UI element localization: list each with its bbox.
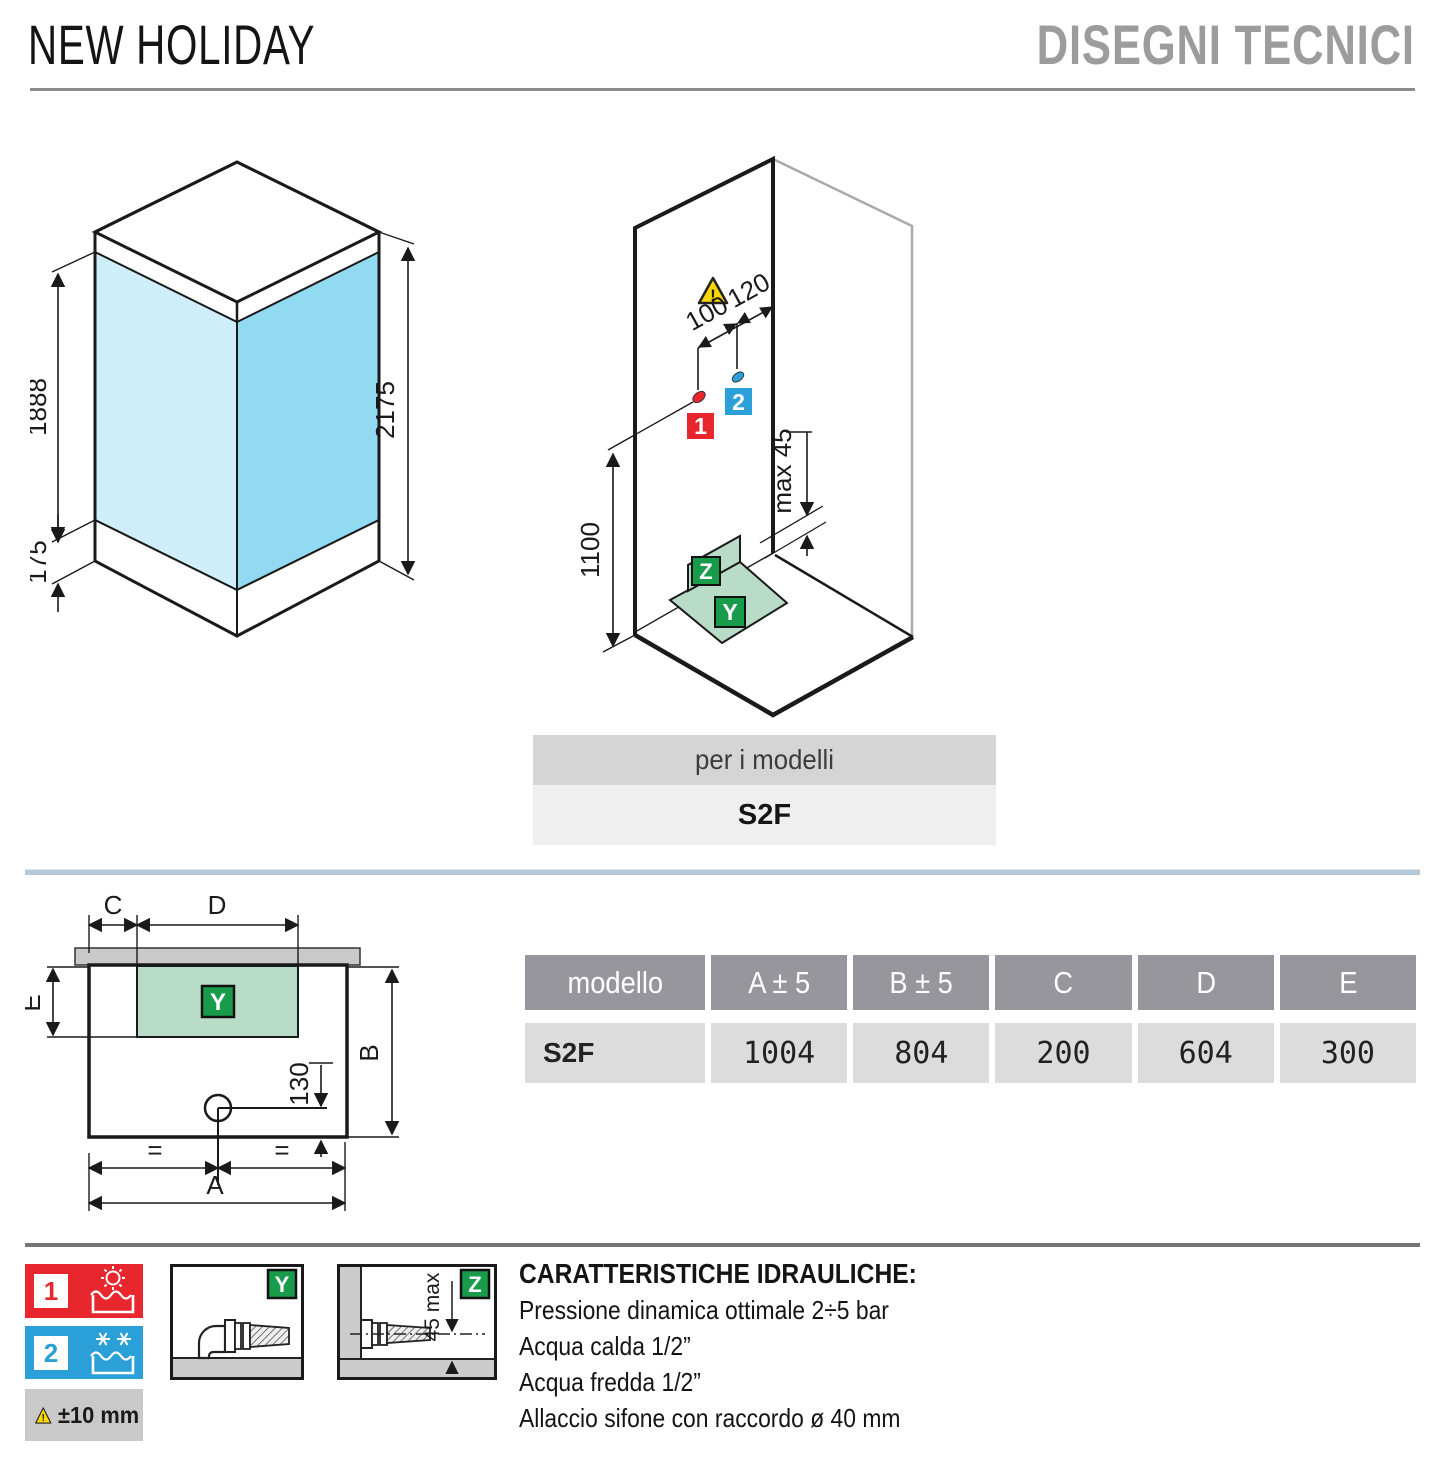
svg-text:B: B [354, 1044, 384, 1061]
header-e: E [1280, 955, 1416, 1010]
floor-strip [340, 1359, 494, 1377]
header-d: D [1138, 955, 1274, 1010]
svg-text:1100: 1100 [575, 522, 605, 578]
cell-b: 804 [853, 1023, 989, 1083]
dimension-175: 175 [30, 514, 95, 612]
svg-text:175: 175 [30, 540, 52, 583]
cold-water-badge: 2 [725, 388, 752, 415]
svg-text:A: A [206, 1170, 224, 1200]
section-title: DISEGNI TECNICI [1037, 12, 1415, 77]
svg-text:2175: 2175 [370, 381, 400, 439]
legend-tolerance: ! ±10 mm [25, 1389, 143, 1441]
svg-text:45 max: 45 max [421, 1272, 444, 1341]
models-bar-model: S2F [533, 785, 996, 845]
water-basin-icon [91, 1292, 133, 1313]
hot-number-badge: 1 [34, 1274, 68, 1308]
svg-text:C: C [104, 895, 123, 920]
drain-detail-y: Y [170, 1264, 304, 1380]
spec-table-data-row: S2F 1004 804 200 604 300 [525, 1023, 1416, 1083]
legend-hot-water: 1 [25, 1264, 143, 1318]
header-c: C [995, 955, 1131, 1010]
svg-text:120: 120 [722, 266, 774, 313]
z-badge: Z [461, 1270, 489, 1298]
dimension-45max: 45 max [421, 1272, 452, 1373]
hydraulic-line-hot: Acqua calda 1/2” [519, 1331, 1012, 1362]
cell-c: 200 [995, 1023, 1131, 1083]
cell-e: 300 [1280, 1023, 1416, 1083]
svg-text:Y: Y [275, 1272, 290, 1297]
hot-water-badge: 1 [687, 413, 714, 439]
wall-bar [75, 948, 360, 965]
water-basin-icon [91, 1353, 133, 1374]
cold-number-badge: 2 [34, 1336, 68, 1370]
svg-text:1888: 1888 [30, 378, 52, 436]
header-a: A ± 5 [711, 955, 847, 1010]
hydraulic-line-siphon: Allaccio sifone con raccordo ø 40 mm [519, 1403, 1012, 1434]
svg-text:Z: Z [468, 1272, 481, 1297]
floor-strip [173, 1358, 301, 1377]
tolerance-value: ±10 mm [58, 1402, 139, 1429]
svg-text:=: = [147, 1135, 162, 1165]
svg-text:=: = [274, 1135, 289, 1165]
svg-text:!: ! [42, 1413, 45, 1424]
installation-isometric-drawing: ! 100 120 1 2 1100 max 45 Z [560, 140, 1040, 760]
page-title: NEW HOLIDAY [28, 12, 315, 77]
cold-water-point [730, 370, 745, 384]
svg-text:Y: Y [722, 599, 737, 625]
svg-text:E: E [25, 994, 46, 1011]
sun-icon [101, 1266, 125, 1290]
dimension-1888: 1888 [30, 252, 95, 542]
svg-text:100: 100 [680, 289, 732, 336]
dimension-100-120: 100 120 [680, 266, 774, 348]
hydraulic-line-pressure: Pressione dinamica ottimale 2÷5 bar [519, 1295, 1012, 1326]
svg-text:Y: Y [210, 989, 226, 1016]
mixer-detail-z: 45 max Z [337, 1264, 497, 1380]
section-divider-top [25, 869, 1420, 875]
threaded-pipe [250, 1325, 289, 1347]
hydraulic-line-cold: Acqua fredda 1/2” [519, 1367, 1012, 1398]
plan-view-drawing: Y C D E B 130 = = A [25, 895, 495, 1225]
svg-text:130: 130 [284, 1062, 314, 1105]
y-badge: Y [268, 1270, 296, 1298]
hydraulic-title: CARATTERISTICHE IDRAULICHE: [519, 1258, 1012, 1290]
cell-a: 1004 [711, 1023, 847, 1083]
z-connection-badge: Z [692, 557, 720, 585]
y-connection-badge: Y [715, 597, 745, 627]
svg-text:2: 2 [732, 389, 745, 415]
spec-table: modello A ± 5 B ± 5 C D E S2F 1004 804 2… [525, 955, 1416, 1083]
cell-model: S2F [525, 1023, 705, 1083]
svg-text:D: D [208, 895, 227, 920]
y-area-badge: Y [202, 986, 234, 1017]
cabin-isometric-drawing: 1888 175 2175 [30, 140, 480, 760]
cell-d: 604 [1138, 1023, 1274, 1083]
header-modello: modello [525, 955, 705, 1010]
spec-table-header-row: modello A ± 5 B ± 5 C D E [525, 955, 1416, 1010]
legend-cold-water: 2 [25, 1326, 143, 1379]
snowflakes-icon [96, 1333, 131, 1345]
warning-icon: ! [33, 1393, 54, 1437]
svg-text:1: 1 [694, 413, 707, 439]
pipe-elbow [199, 1326, 225, 1358]
models-bar-header: per i modelli [533, 735, 996, 785]
floor-edge [635, 635, 913, 715]
drain-y-drawing: Y [173, 1267, 301, 1377]
svg-text:max 45: max 45 [767, 428, 797, 513]
header-rule [30, 88, 1415, 91]
section-divider-bottom [25, 1243, 1420, 1247]
svg-text:Z: Z [699, 559, 712, 584]
dimension-max45: max 45 [760, 428, 826, 558]
header-b: B ± 5 [853, 955, 989, 1010]
dimension-b: B [347, 967, 399, 1137]
hydraulic-specs: CARATTERISTICHE IDRAULICHE: Pressione di… [519, 1258, 1079, 1434]
mixer-z-drawing: 45 max Z [340, 1267, 494, 1377]
